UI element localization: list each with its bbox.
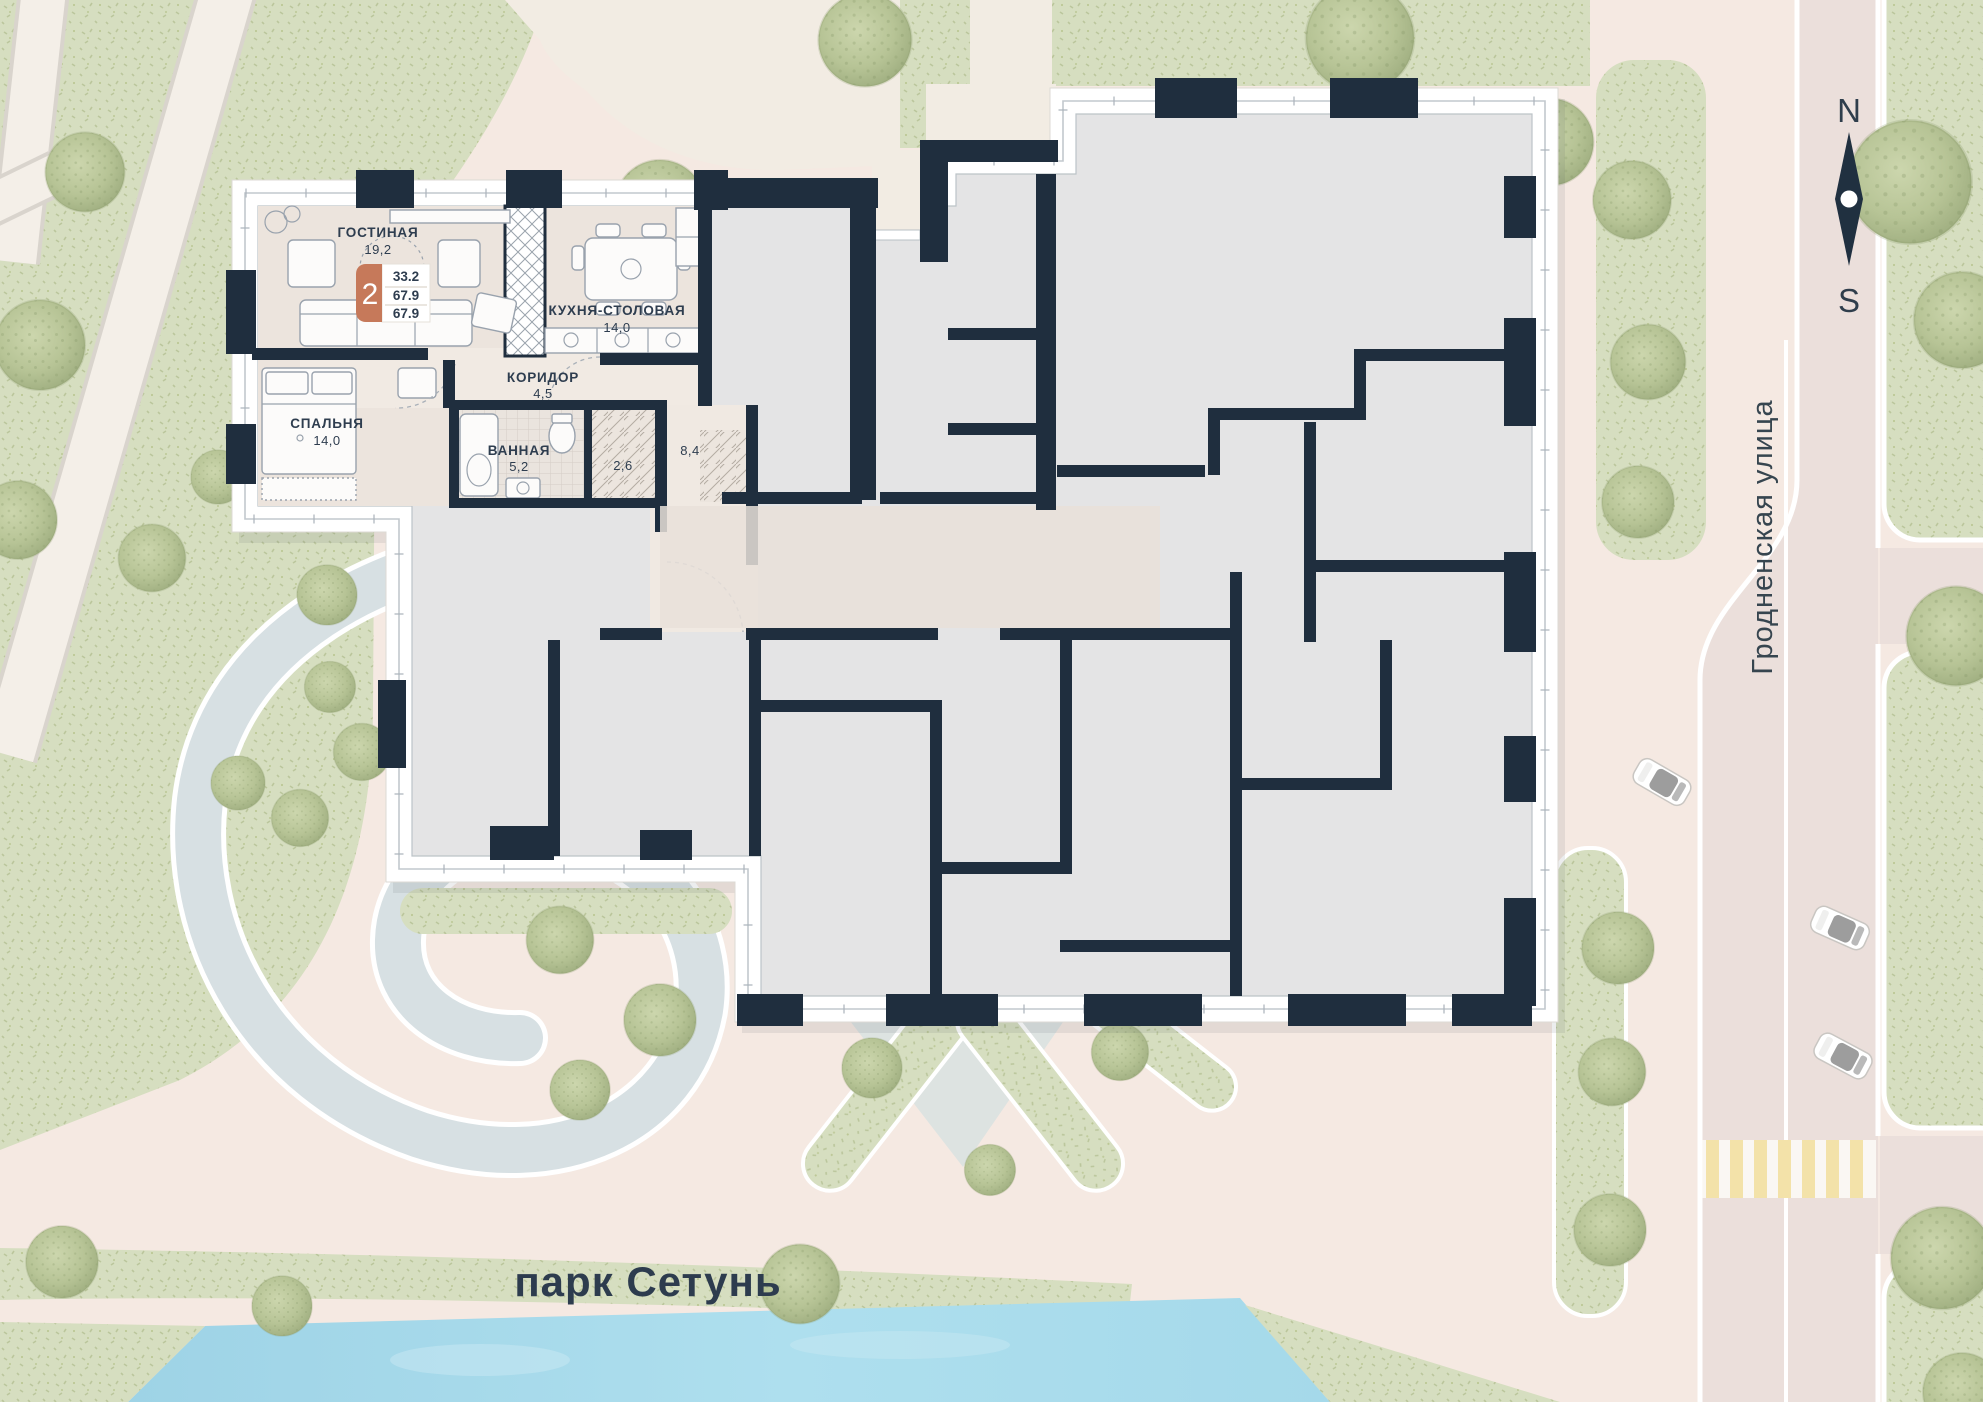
compass-north-label: N <box>1837 92 1861 129</box>
apartment-info-badge[interactable]: 2 33.2 67.9 67.9 <box>356 264 430 322</box>
site-plan-canvas: ГОСТИНАЯ 19,2 КУХНЯ-СТОЛОВАЯ 14,0 КОРИДО… <box>0 0 1983 1402</box>
room-area-bathroom: 5,2 <box>509 459 529 474</box>
living-area-value: 33.2 <box>393 269 419 284</box>
room-label-living: ГОСТИНАЯ <box>338 225 419 240</box>
room-label-kitchen: КУХНЯ-СТОЛОВАЯ <box>548 303 685 318</box>
compass: N S <box>1835 92 1863 319</box>
room-area-kitchen: 14,0 <box>603 320 630 335</box>
rooms-count-badge: 2 <box>362 278 379 311</box>
street-name-label: Гродненская улица <box>1747 399 1779 674</box>
room-label-bedroom: СПАЛЬНЯ <box>290 416 364 431</box>
crosswalk <box>1702 1140 1876 1198</box>
room-label-corridor: КОРИДОР <box>507 370 579 385</box>
room-label-bathroom: ВАННАЯ <box>488 443 551 458</box>
room-area-living: 19,2 <box>364 242 391 257</box>
room-area-bedroom: 14,0 <box>313 433 340 448</box>
park-name-label: парк Сетунь <box>514 1258 781 1305</box>
total-area-value: 67.9 <box>393 288 419 303</box>
compass-south-label: S <box>1838 282 1860 319</box>
room-area-hall: 8,4 <box>680 443 700 458</box>
floorplan-map-screenshot: ГОСТИНАЯ 19,2 КУХНЯ-СТОЛОВАЯ 14,0 КОРИДО… <box>0 0 1983 1402</box>
building-floorplan: ГОСТИНАЯ 19,2 КУХНЯ-СТОЛОВАЯ 14,0 КОРИДО… <box>226 78 1565 1033</box>
room-area-corridor: 4,5 <box>533 386 553 401</box>
total-area-value-2: 67.9 <box>393 306 419 321</box>
room-area-closet: 2,6 <box>613 458 633 473</box>
